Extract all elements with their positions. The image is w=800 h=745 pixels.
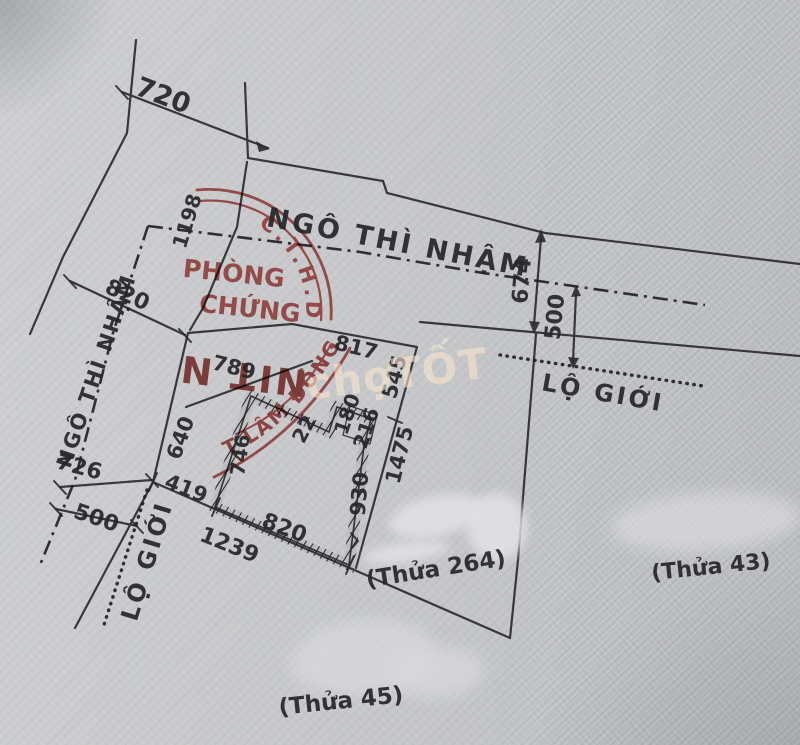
dim-674: 674	[510, 257, 536, 305]
dim-930: 930	[348, 471, 373, 517]
stamp-word-chung: CHỨNG	[198, 288, 302, 328]
dim-746: 746	[227, 433, 253, 477]
block-north-boundary	[188, 324, 417, 347]
street-south-edge-right	[420, 322, 800, 356]
thua264-east-boundary	[510, 334, 536, 638]
dim-extension-line-top	[245, 83, 248, 158]
stamp-word-phong: PHÒNG	[182, 253, 287, 293]
dim-line-500-right	[573, 293, 576, 362]
scanned-cadastral-map: C.T.H.D T LÂM ĐỒNG ★ PHÒNG CHỨNG NIT N 7…	[0, 0, 800, 745]
dim-500-right: 500	[543, 293, 570, 341]
